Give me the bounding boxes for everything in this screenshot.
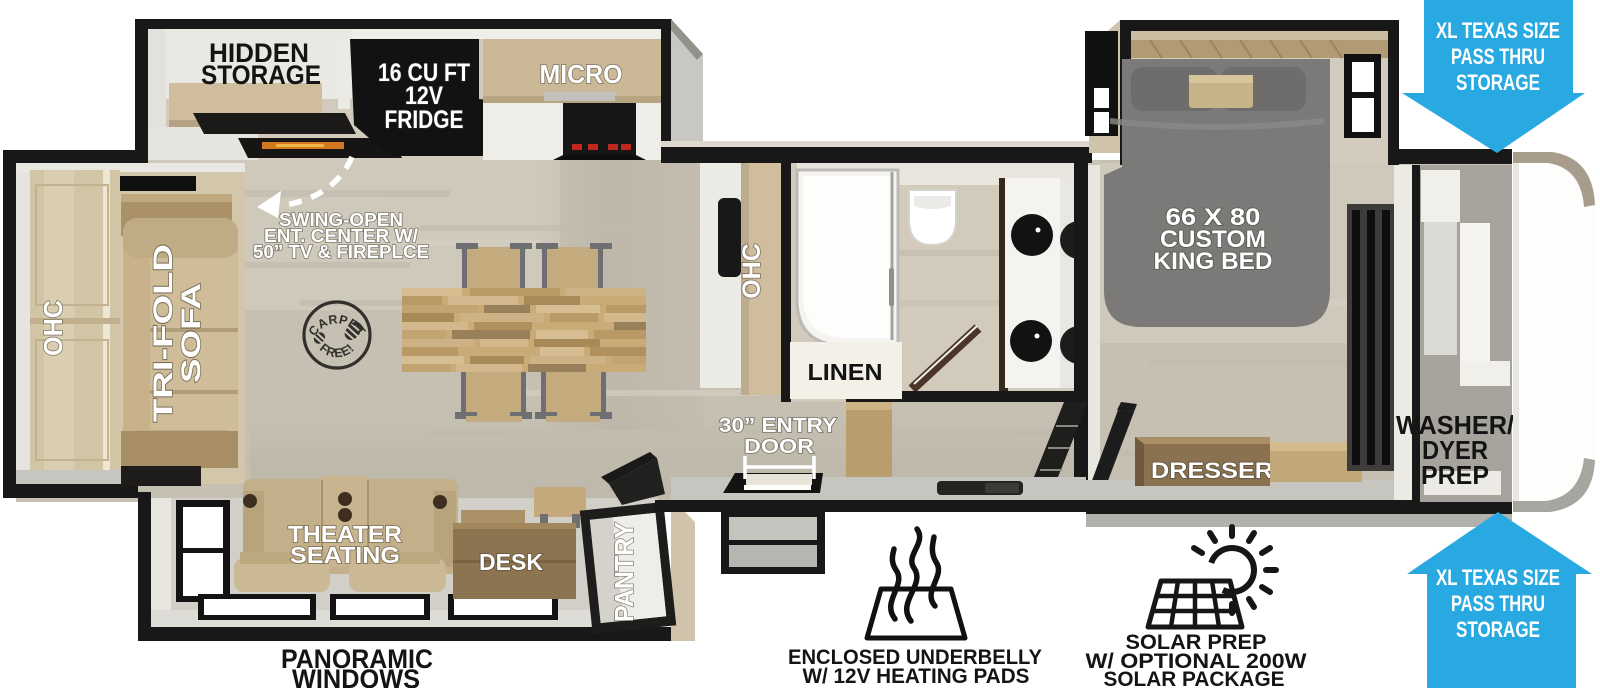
svg-text:STORAGE: STORAGE xyxy=(1456,70,1540,95)
svg-text:W/ 12V HEATING PADS: W/ 12V HEATING PADS xyxy=(803,665,1030,688)
svg-text:DESK: DESK xyxy=(479,549,543,575)
svg-text:MICRO: MICRO xyxy=(540,59,623,89)
svg-text:TRI-FOLD: TRI-FOLD xyxy=(148,244,178,422)
svg-text:PASS THRU: PASS THRU xyxy=(1451,44,1545,69)
svg-text:OHC: OHC xyxy=(738,243,766,299)
svg-text:FRIDGE: FRIDGE xyxy=(385,106,464,134)
svg-text:LINEN: LINEN xyxy=(808,359,883,385)
svg-text:XL TEXAS SIZE: XL TEXAS SIZE xyxy=(1436,18,1560,43)
svg-text:WINDOWS: WINDOWS xyxy=(292,664,420,688)
svg-text:OHC: OHC xyxy=(38,300,68,356)
svg-text:XL TEXAS SIZE: XL TEXAS SIZE xyxy=(1436,565,1560,590)
svg-text:30” ENTRY: 30” ENTRY xyxy=(719,415,838,437)
svg-text:STORAGE: STORAGE xyxy=(201,60,321,90)
svg-text:SOFA: SOFA xyxy=(176,283,206,383)
svg-text:DRESSER: DRESSER xyxy=(1151,458,1273,483)
svg-text:KING BED: KING BED xyxy=(1154,248,1273,275)
svg-text:PREP: PREP xyxy=(1421,460,1489,490)
svg-text:SOLAR PACKAGE: SOLAR PACKAGE xyxy=(1104,668,1285,688)
svg-text:50” TV & FIREPLCE: 50” TV & FIREPLCE xyxy=(253,242,429,262)
svg-text:PANTRY: PANTRY xyxy=(609,522,639,622)
svg-text:SEATING: SEATING xyxy=(290,542,400,568)
svg-text:DOOR: DOOR xyxy=(744,436,815,458)
svg-text:PASS THRU: PASS THRU xyxy=(1451,591,1545,616)
svg-text:STORAGE: STORAGE xyxy=(1456,617,1540,642)
